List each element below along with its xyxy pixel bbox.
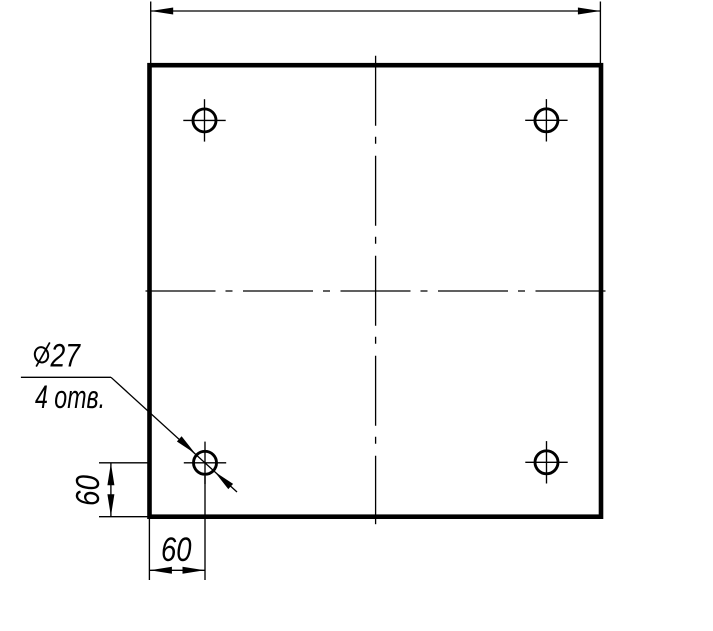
svg-text:60: 60 <box>161 531 192 569</box>
svg-text:27: 27 <box>50 337 82 373</box>
svg-text:60: 60 <box>69 474 106 506</box>
svg-text:4 отв.: 4 отв. <box>35 379 105 415</box>
